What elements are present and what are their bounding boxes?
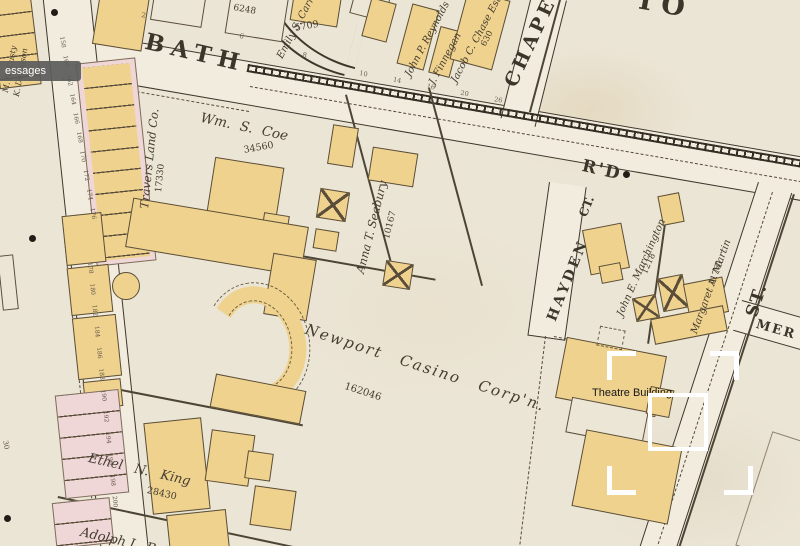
coe-shed: [313, 228, 340, 252]
lot-number-west-30: 30: [1, 440, 9, 450]
messages-tooltip: essages: [0, 61, 81, 81]
utility-pole-dot-1: [51, 9, 58, 16]
map-canvas[interactable]: BATH R'D CHAPE TO HAYDEN CT. ST. MER Tra…: [0, 0, 800, 546]
selection-corner-top-left[interactable]: [607, 351, 636, 380]
casino-east-boundary-dashed: [519, 336, 546, 546]
selection-corner-bottom-right[interactable]: [724, 466, 753, 495]
street-label-to-partial: TO: [633, 0, 692, 22]
king-rowhouse-block: [55, 389, 130, 499]
owner-number-travers: 17330: [155, 164, 167, 193]
selection-corner-top-right[interactable]: [710, 351, 739, 380]
selection-box[interactable]: [648, 393, 708, 451]
selection-corner-bottom-left[interactable]: [607, 466, 636, 495]
owner-number-seabury: 10167: [383, 210, 399, 240]
utility-pole-dot-2: [623, 171, 630, 178]
owner-number-coe: 34560: [243, 141, 274, 156]
casino-lower-building-4: [249, 485, 296, 530]
owner-label-casino: Newport Casino Corp'n.: [303, 322, 547, 414]
coe-stable-xmark: [316, 188, 350, 222]
seabury-stable-xmark: [382, 260, 414, 290]
casino-lower-building-5: [166, 509, 230, 546]
utility-pole-dot-3: [29, 235, 36, 242]
street-number-6: 6: [239, 33, 245, 41]
coe-outbuilding: [327, 124, 359, 168]
casino-round-tower: [112, 272, 140, 300]
owner-number-casino: 162046: [343, 382, 382, 403]
utility-pole-dot-4: [4, 515, 11, 522]
casino-front-a: [61, 212, 106, 266]
owner-label-travers: Travers Land Co.: [139, 108, 161, 209]
owner-label-coe: Wm. S. Coe: [199, 112, 289, 144]
marchington-house-ell: [598, 262, 623, 284]
west-outbuilding: [0, 254, 19, 310]
bath-corner-building: [92, 0, 150, 52]
bath-north-building-1: [150, 0, 206, 28]
casino-lower-building-3: [244, 450, 274, 481]
